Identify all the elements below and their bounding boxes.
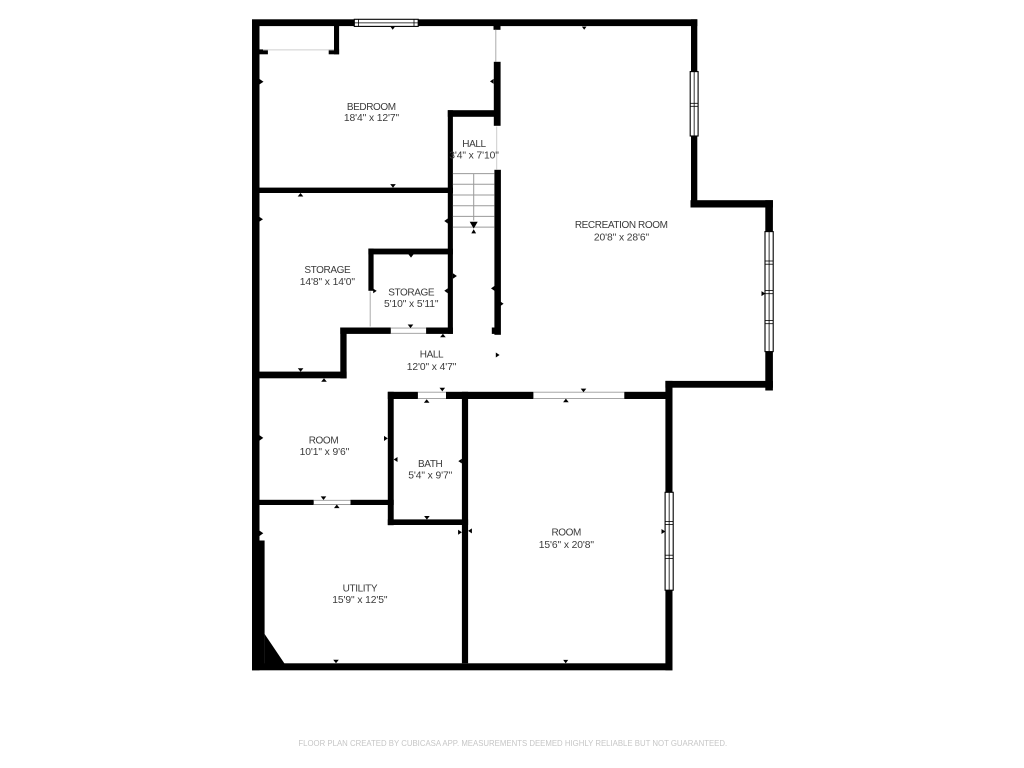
svg-text:12'0" x 4'7": 12'0" x 4'7" bbox=[407, 362, 457, 373]
svg-text:RECREATION ROOM: RECREATION ROOM bbox=[575, 220, 668, 231]
svg-text:HALL: HALL bbox=[462, 139, 486, 150]
svg-text:BATH: BATH bbox=[418, 459, 443, 470]
svg-text:5'4" x 9'7": 5'4" x 9'7" bbox=[408, 470, 452, 481]
svg-text:20'8" x 28'6": 20'8" x 28'6" bbox=[594, 233, 650, 244]
svg-text:18'4" x 12'7": 18'4" x 12'7" bbox=[344, 113, 400, 124]
svg-text:STORAGE: STORAGE bbox=[388, 287, 435, 298]
svg-text:HALL: HALL bbox=[420, 350, 444, 361]
svg-text:STORAGE: STORAGE bbox=[304, 265, 351, 276]
svg-text:BEDROOM: BEDROOM bbox=[347, 102, 396, 113]
svg-text:FLOOR PLAN CREATED BY CUBICASA: FLOOR PLAN CREATED BY CUBICASA APP. MEAS… bbox=[298, 739, 727, 748]
svg-text:5'10" x 5'11": 5'10" x 5'11" bbox=[384, 299, 439, 310]
svg-text:10'1" x 9'6": 10'1" x 9'6" bbox=[300, 447, 350, 458]
svg-text:14'8" x 14'0": 14'8" x 14'0" bbox=[300, 277, 356, 288]
svg-text:ROOM: ROOM bbox=[309, 436, 339, 447]
svg-text:3'4" x 7'10": 3'4" x 7'10" bbox=[449, 151, 499, 162]
svg-text:UTILITY: UTILITY bbox=[343, 584, 378, 595]
svg-text:15'9" x 12'5": 15'9" x 12'5" bbox=[332, 595, 388, 606]
svg-text:ROOM: ROOM bbox=[551, 528, 581, 539]
svg-text:15'6" x 20'8": 15'6" x 20'8" bbox=[539, 540, 595, 551]
